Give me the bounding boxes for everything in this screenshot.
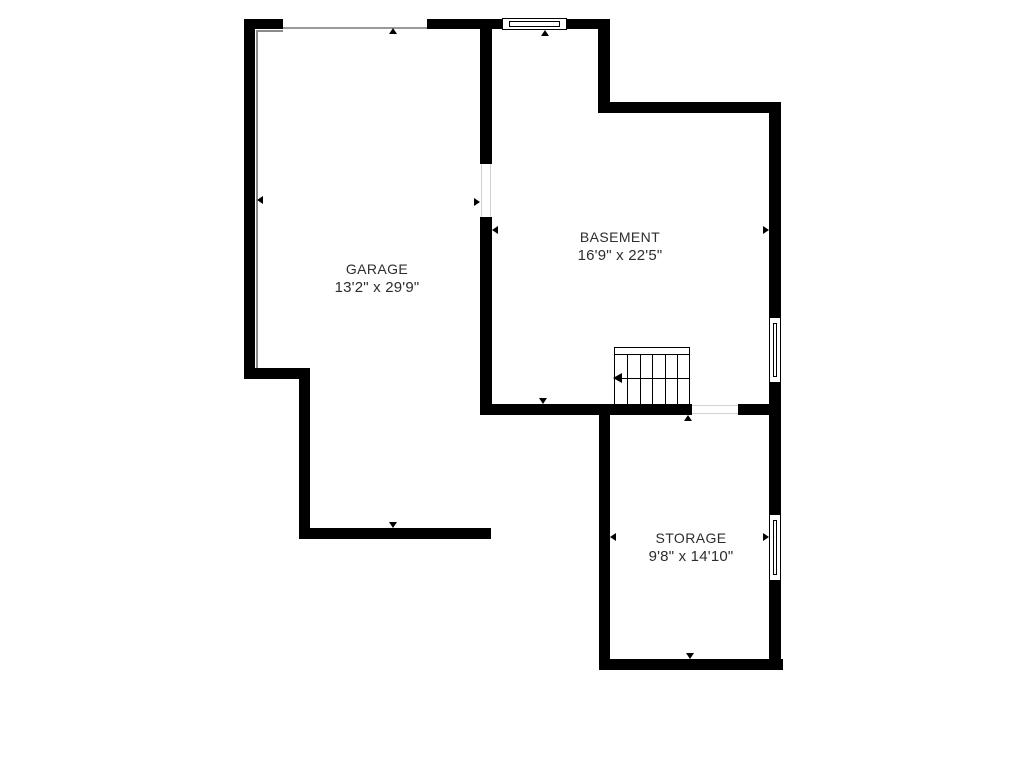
window-pane xyxy=(509,21,560,27)
measure-arrow-basement-left-icon xyxy=(492,226,498,234)
wall-garage-left xyxy=(244,19,255,379)
measure-arrow-basement-top-icon xyxy=(541,30,549,36)
wall-storage-right-lower xyxy=(769,581,781,670)
wall-divider-lower xyxy=(480,217,492,415)
measure-arrow-storage-bottom-icon xyxy=(686,653,694,659)
garage-room-label: GARAGE 13'2" x 29'9" xyxy=(335,260,420,298)
room-name: STORAGE xyxy=(649,529,734,547)
bottom-doorway-line-lower xyxy=(692,413,738,414)
measure-arrow-garage-bottom-icon xyxy=(389,522,397,528)
floorplan-canvas: GARAGE 13'2" x 29'9" BASEMENT 16'9" x 22… xyxy=(0,0,1024,768)
storage-window-icon xyxy=(769,514,781,581)
stair-tread-line xyxy=(689,354,690,404)
stair-tread-line xyxy=(640,354,641,404)
wall-storage-bottom xyxy=(599,659,783,670)
garage-interior-line-top xyxy=(256,30,283,32)
basement-window-icon xyxy=(769,317,781,383)
stair-run-line xyxy=(618,378,690,379)
room-dimensions: 9'8" x 14'10" xyxy=(649,547,734,567)
wall-basement-top xyxy=(598,102,780,113)
wall-upper-right-vertical xyxy=(598,19,610,113)
window-pane xyxy=(773,323,777,377)
measure-arrow-basement-bottom-icon xyxy=(539,398,547,404)
measure-arrow-storage-left-icon xyxy=(610,533,616,541)
bottom-doorway-line-upper xyxy=(692,405,738,406)
basement-room-label: BASEMENT 16'9" x 22'5" xyxy=(578,228,663,266)
stair-tread-line xyxy=(677,354,678,404)
measure-arrow-basement-right-icon xyxy=(763,226,769,234)
basement-doorway-jamb-right xyxy=(490,164,491,217)
wall-basement-right-upper xyxy=(769,102,781,317)
wall-storage-right-upper xyxy=(769,415,781,515)
measure-arrow-storage-right-icon xyxy=(763,533,769,541)
room-name: BASEMENT xyxy=(578,228,663,246)
window-pane xyxy=(773,520,777,575)
wall-storage-left xyxy=(599,404,610,670)
measure-arrow-garage-top-icon xyxy=(389,28,397,34)
garage-door-line xyxy=(283,27,427,29)
wall-basement-bottom-left xyxy=(480,404,692,415)
basement-doorway-jamb-left xyxy=(481,164,482,217)
wall-divider-upper xyxy=(480,19,492,164)
room-dimensions: 16'9" x 22'5" xyxy=(578,246,663,266)
stair-direction-arrow-icon xyxy=(613,373,622,383)
wall-garage-lower-left xyxy=(299,368,310,539)
stair-tread-line xyxy=(652,354,653,404)
wall-garage-bottom xyxy=(299,528,491,539)
measure-arrow-garage-right-icon xyxy=(474,198,480,206)
measure-arrow-garage-left-icon xyxy=(257,196,263,204)
stair-tread-line xyxy=(627,354,628,404)
top-window-icon xyxy=(502,18,567,30)
wall-basement-bottom-right xyxy=(738,404,781,415)
room-dimensions: 13'2" x 29'9" xyxy=(335,278,420,298)
measure-arrow-storage-top-icon xyxy=(684,415,692,421)
stair-tread-line xyxy=(665,354,666,404)
room-name: GARAGE xyxy=(335,260,420,278)
storage-room-label: STORAGE 9'8" x 14'10" xyxy=(649,529,734,567)
